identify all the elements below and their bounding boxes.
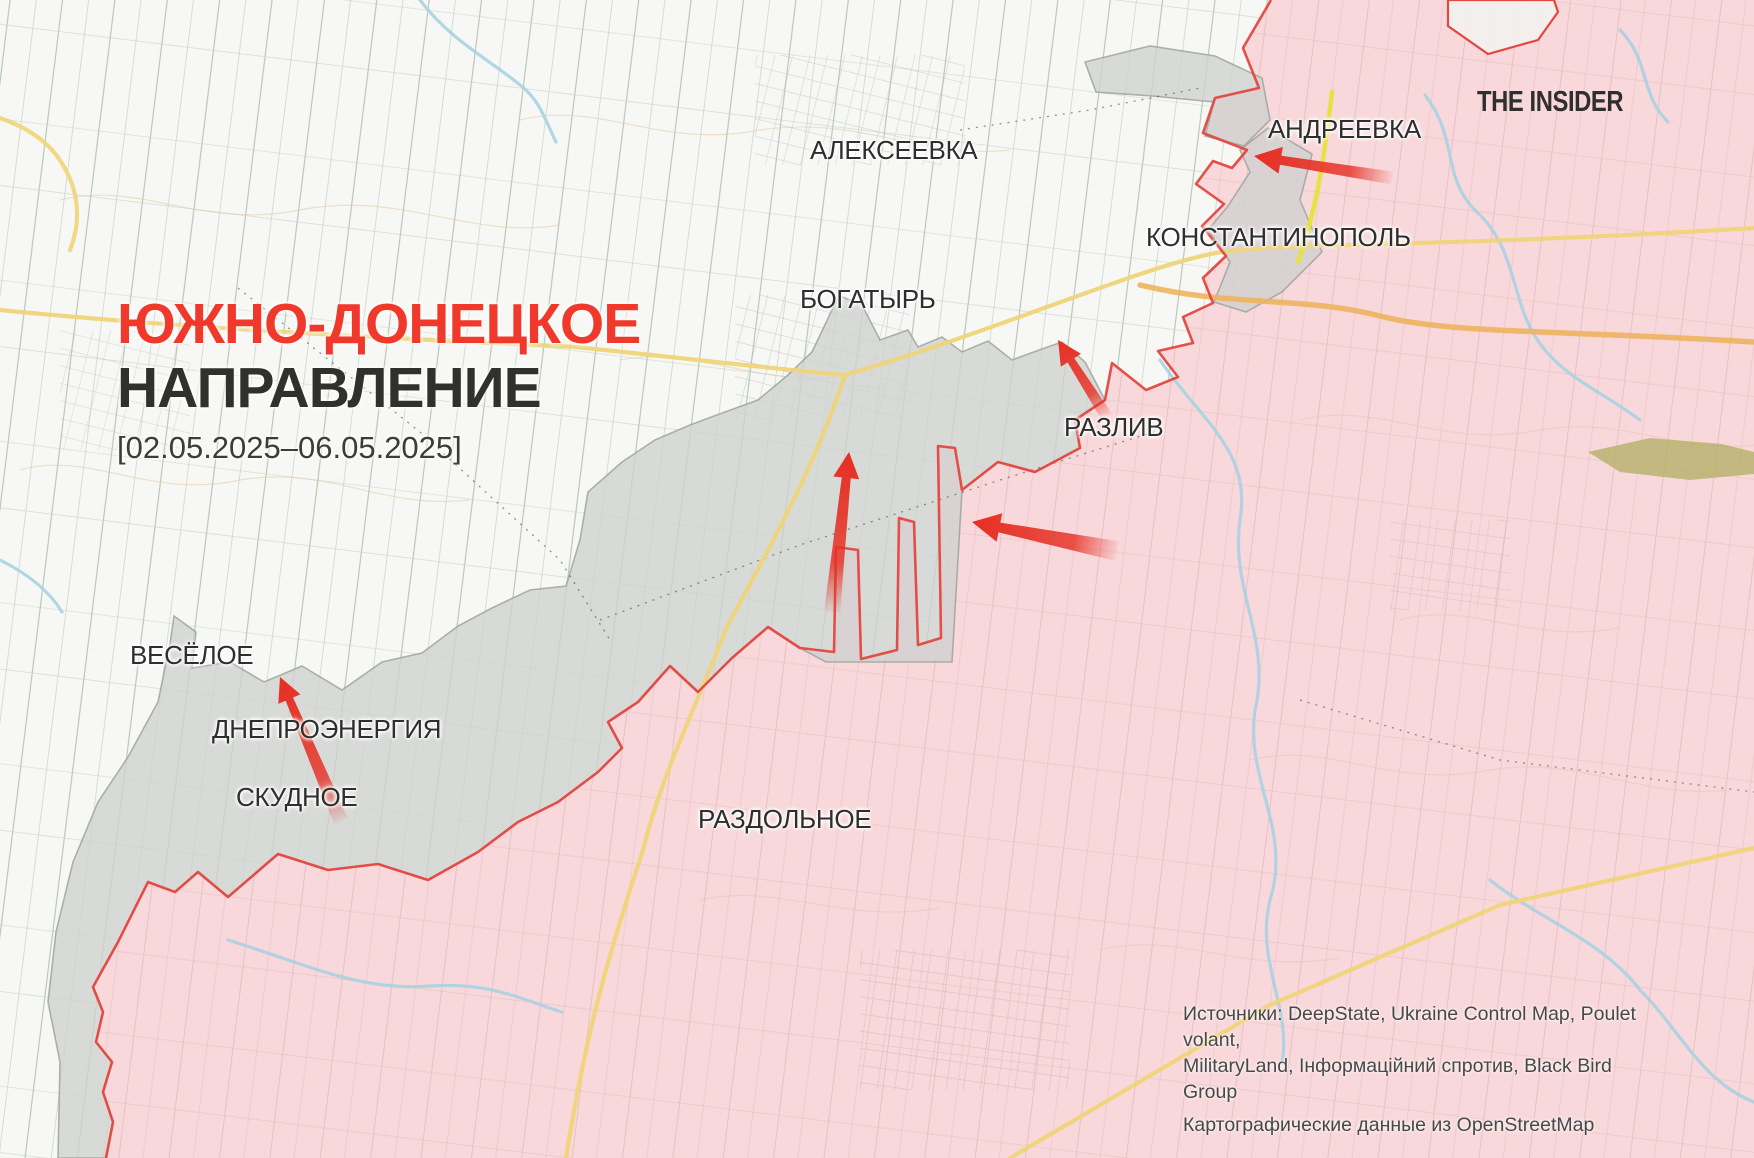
map-stage: ЮЖНО-ДОНЕЦКОЕ НАПРАВЛЕНИЕ [02.05.2025–06… xyxy=(0,0,1754,1158)
razdolnoe-street-grid xyxy=(860,950,1070,1090)
map-canvas xyxy=(0,0,1754,1158)
alekseevka-street-grid xyxy=(755,55,965,165)
